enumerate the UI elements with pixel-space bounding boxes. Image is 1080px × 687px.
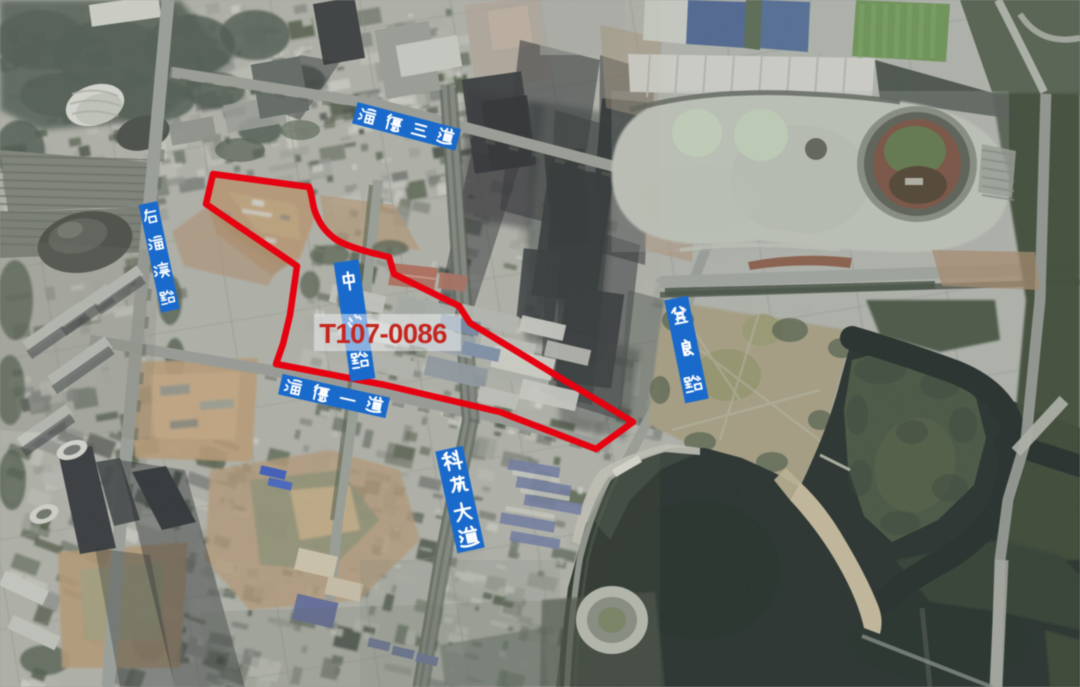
- svg-text:T107-0086: T107-0086: [319, 318, 447, 349]
